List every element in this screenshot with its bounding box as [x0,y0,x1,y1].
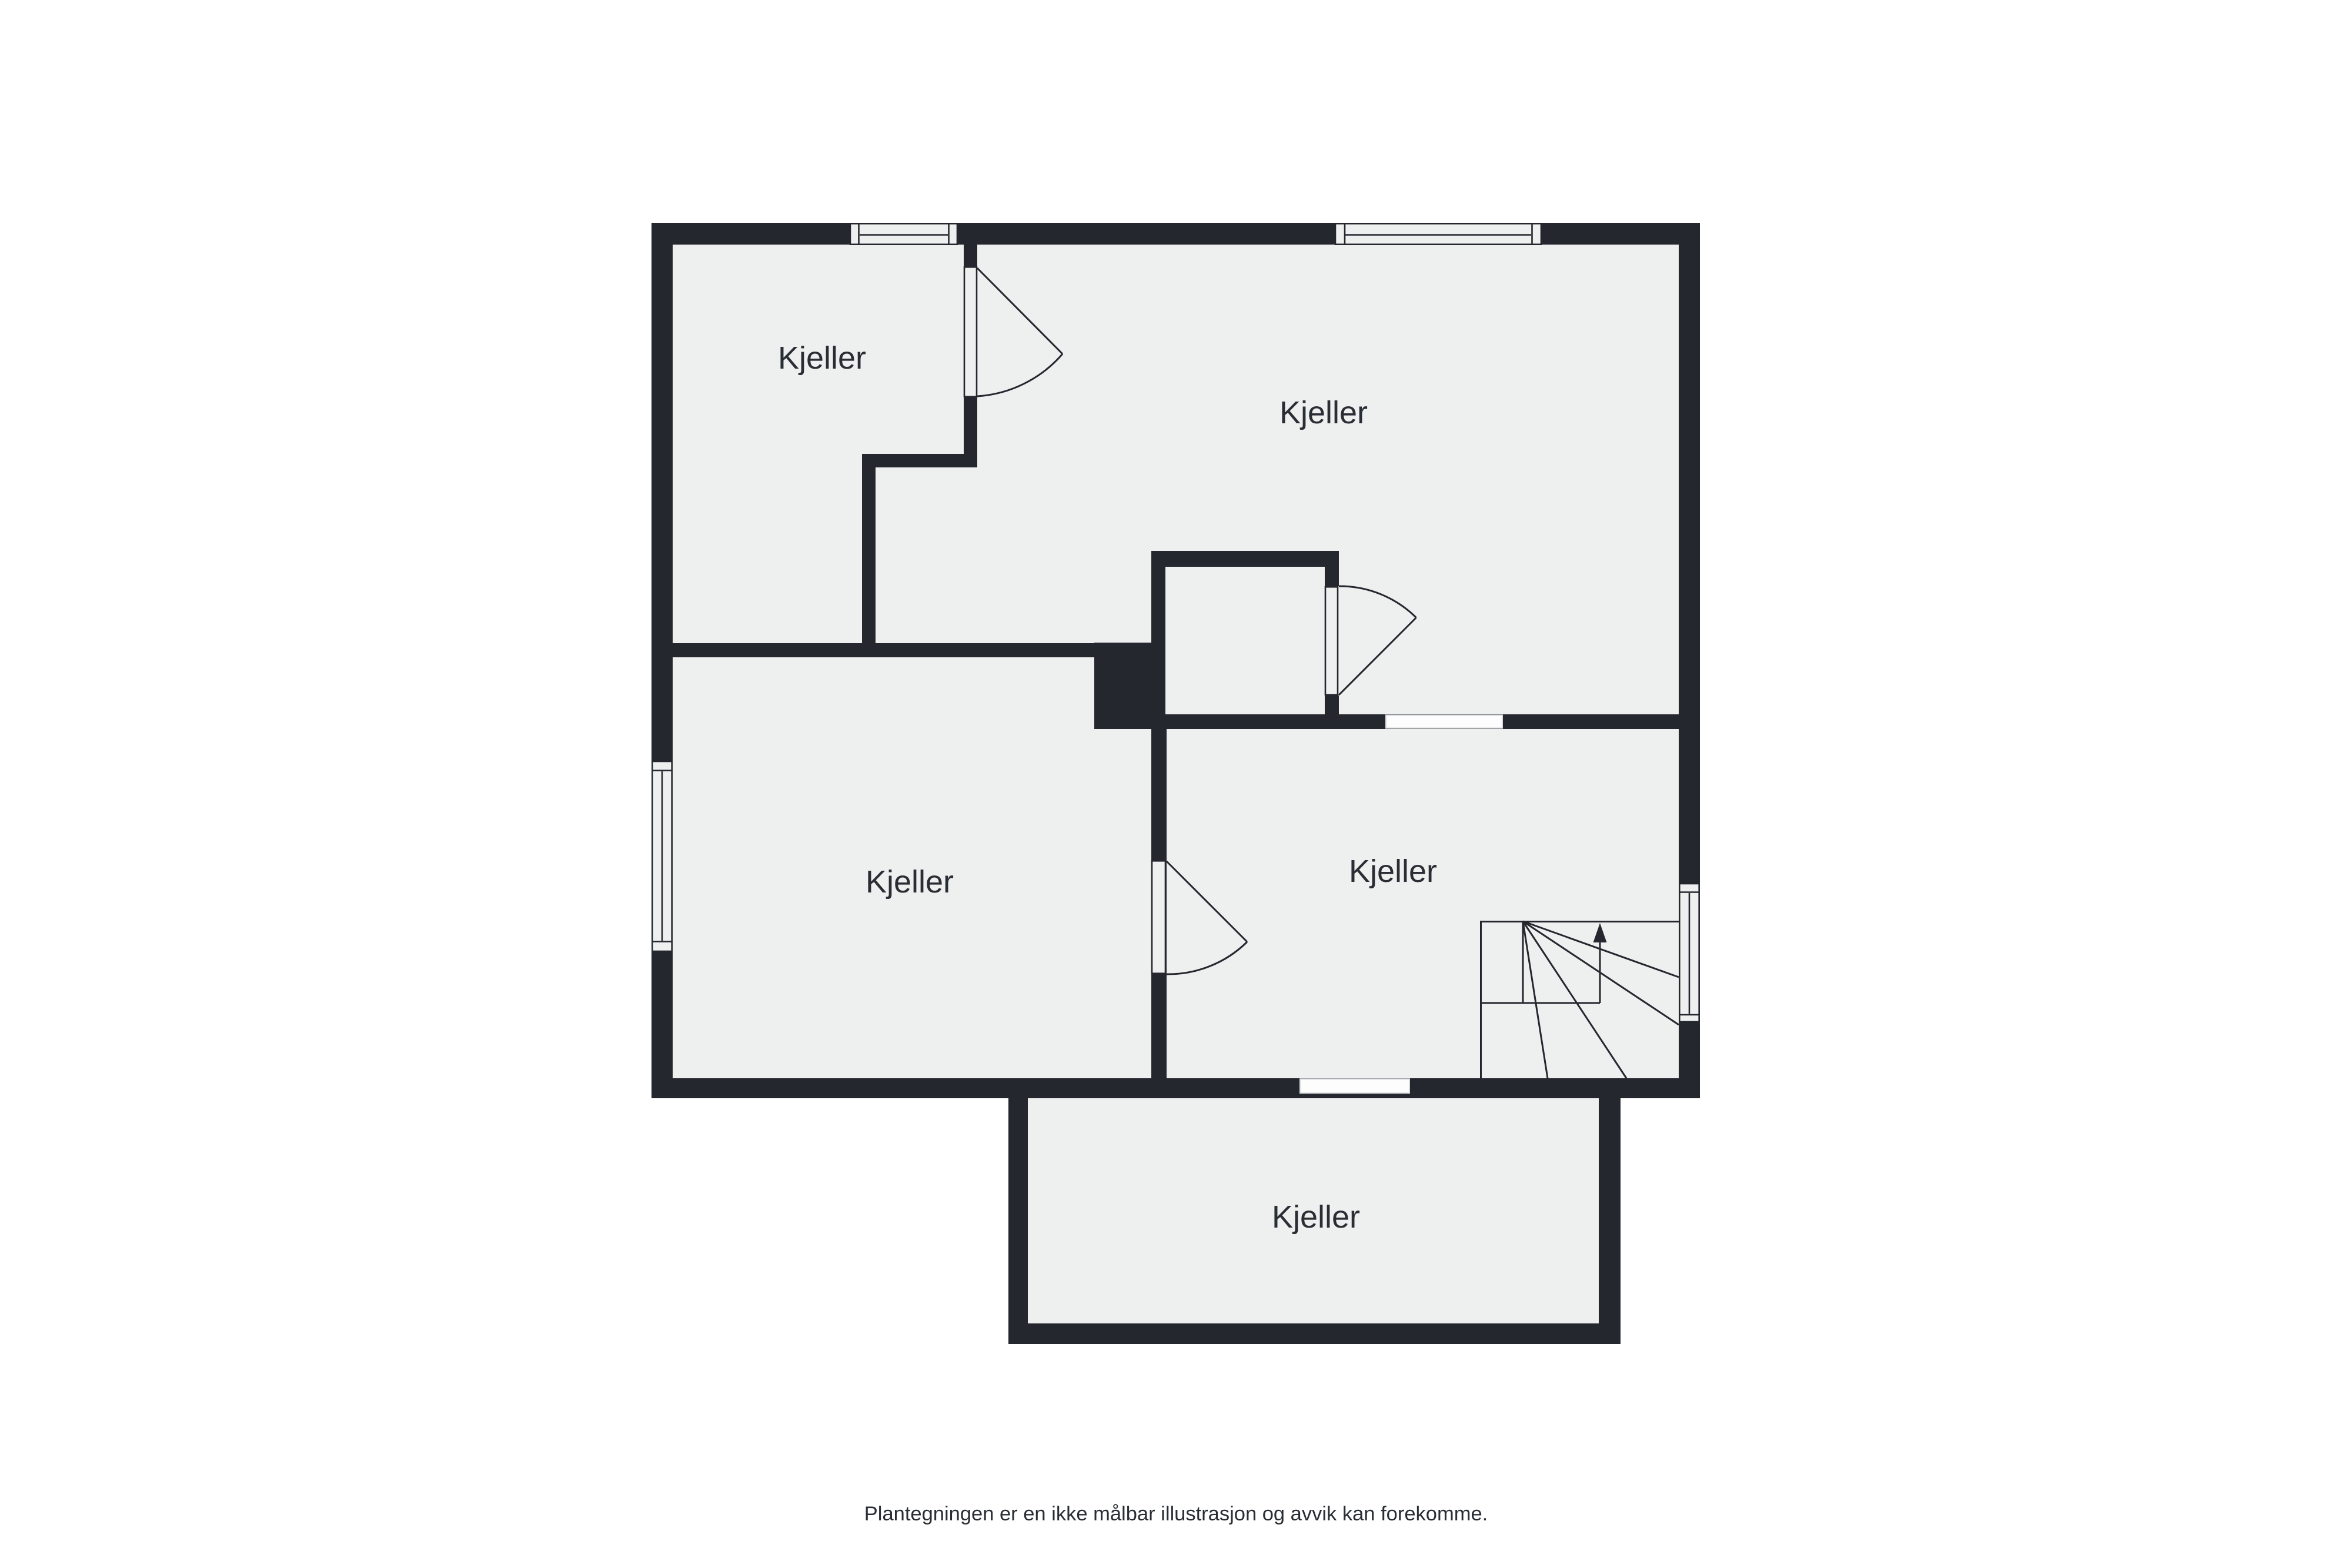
svg-text:Kjeller: Kjeller [1349,854,1437,889]
svg-text:Kjeller: Kjeller [778,340,866,376]
svg-text:Kjeller: Kjeller [866,864,954,900]
svg-text:Kjeller: Kjeller [1279,395,1368,430]
svg-text:Plantegningen er en ikke målba: Plantegningen er en ikke målbar illustra… [864,1503,1488,1525]
svg-text:Kjeller: Kjeller [1272,1199,1360,1235]
